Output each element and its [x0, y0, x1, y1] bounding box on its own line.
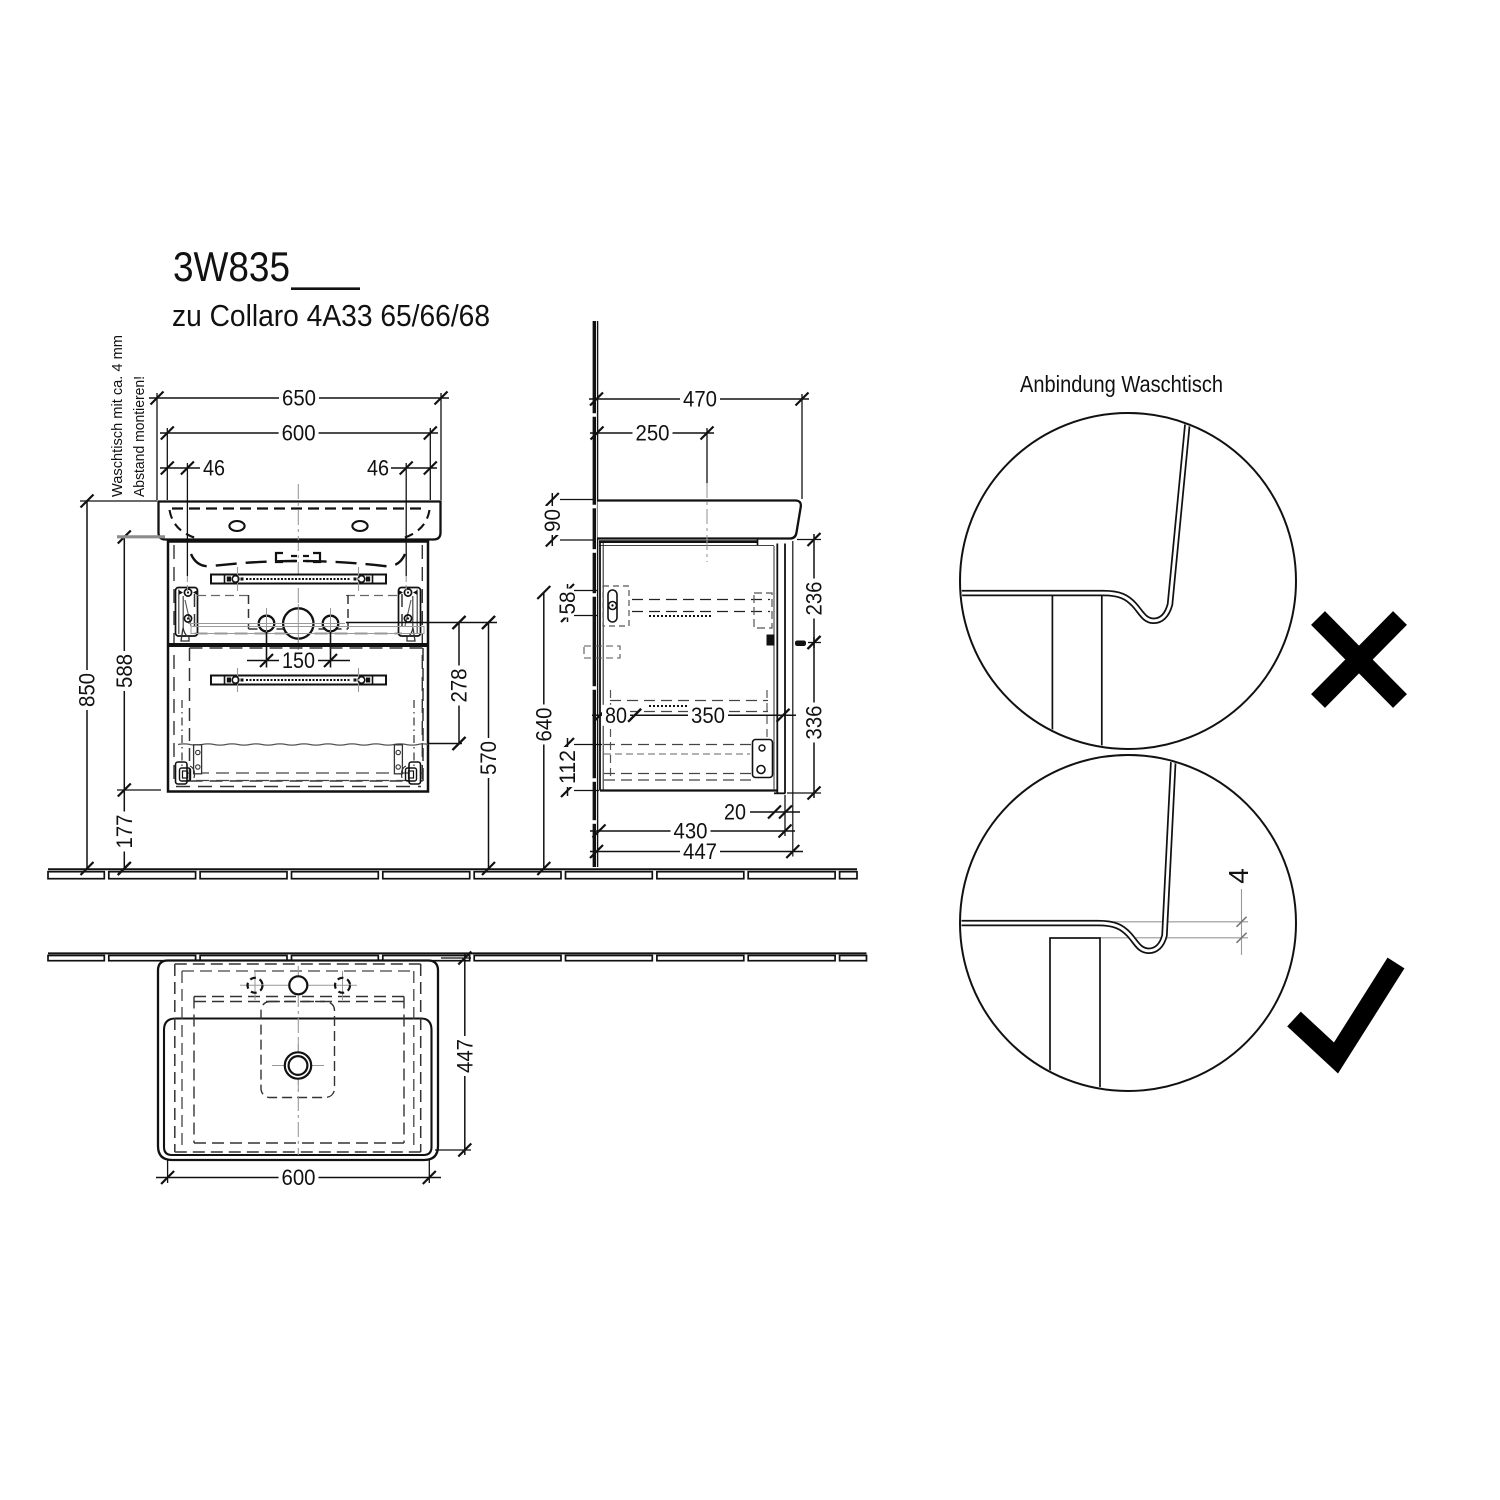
svg-text:350: 350	[691, 703, 725, 728]
svg-text:570: 570	[476, 741, 501, 775]
svg-text:150: 150	[282, 648, 315, 673]
svg-text:3W835: 3W835	[173, 243, 290, 290]
svg-text:447: 447	[683, 839, 717, 864]
svg-text:112: 112	[555, 750, 580, 784]
svg-text:278: 278	[447, 669, 472, 703]
svg-text:Waschtisch mit ca. 4 mm: Waschtisch mit ca. 4 mm	[109, 335, 126, 497]
svg-text:850: 850	[75, 673, 100, 707]
svg-text:Abstand montieren!: Abstand montieren!	[131, 376, 148, 497]
svg-text:447: 447	[452, 1039, 477, 1073]
svg-text:588: 588	[112, 654, 137, 688]
svg-text:Anbindung Waschtisch: Anbindung Waschtisch	[1020, 371, 1223, 397]
svg-text:650: 650	[282, 386, 316, 411]
svg-text:58: 58	[555, 592, 580, 615]
svg-text:46: 46	[367, 456, 389, 481]
svg-text:80: 80	[605, 703, 627, 728]
svg-text:470: 470	[683, 387, 717, 412]
svg-text:46: 46	[203, 456, 225, 481]
svg-text:177: 177	[112, 815, 137, 849]
svg-text:336: 336	[802, 706, 827, 740]
svg-text:20: 20	[724, 800, 746, 825]
svg-text:236: 236	[802, 582, 827, 616]
svg-text:250: 250	[636, 421, 670, 446]
svg-text:90: 90	[540, 509, 565, 532]
svg-text:600: 600	[282, 421, 316, 446]
svg-text:600: 600	[282, 1165, 316, 1190]
svg-text:4: 4	[1223, 868, 1254, 884]
svg-text:zu Collaro 4A33 65/66/68: zu Collaro 4A33 65/66/68	[172, 298, 490, 333]
svg-text:640: 640	[531, 708, 556, 742]
